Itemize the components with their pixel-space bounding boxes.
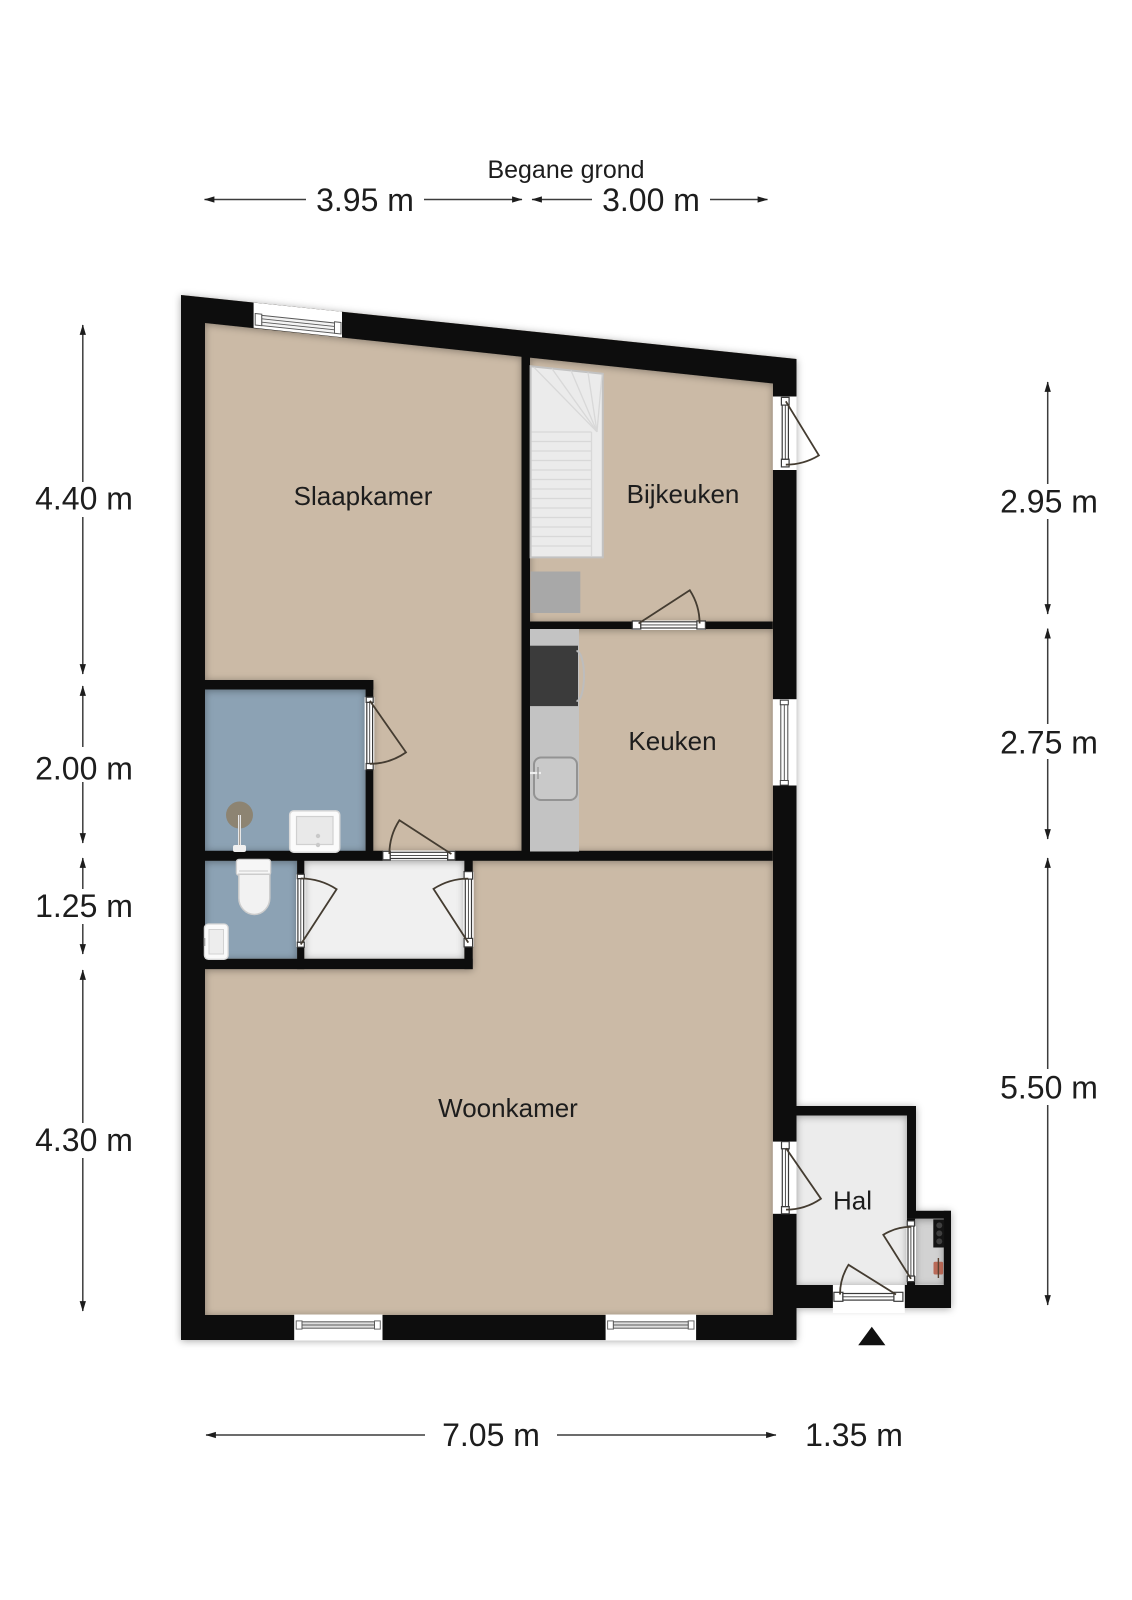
svg-text:4.40 m: 4.40 m (35, 481, 133, 517)
svg-text:2.00 m: 2.00 m (35, 751, 133, 787)
svg-text:3.00 m: 3.00 m (602, 182, 700, 218)
svg-text:7.05 m: 7.05 m (442, 1417, 540, 1453)
svg-text:Begane grond: Begane grond (487, 156, 644, 184)
svg-text:Hal: Hal (833, 1186, 872, 1216)
svg-text:Keuken: Keuken (628, 726, 716, 756)
svg-text:Slaapkamer: Slaapkamer (294, 481, 433, 511)
svg-text:Bijkeuken: Bijkeuken (627, 479, 740, 509)
svg-text:1.25 m: 1.25 m (35, 888, 133, 924)
svg-text:2.95 m: 2.95 m (1000, 484, 1098, 520)
svg-text:5.50 m: 5.50 m (1000, 1070, 1098, 1106)
svg-text:4.30 m: 4.30 m (35, 1122, 133, 1158)
svg-text:2.75 m: 2.75 m (1000, 725, 1098, 761)
svg-text:Woonkamer: Woonkamer (438, 1093, 578, 1123)
svg-text:1.35 m: 1.35 m (805, 1417, 903, 1453)
svg-text:3.95 m: 3.95 m (316, 182, 414, 218)
